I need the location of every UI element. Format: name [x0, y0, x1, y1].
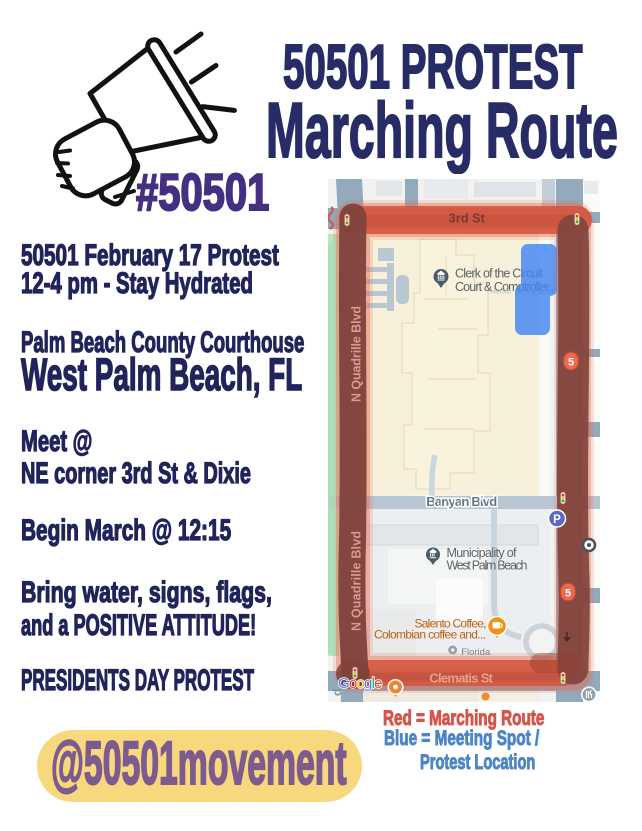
- svg-text:5: 5: [565, 588, 571, 600]
- svg-text:Colombian coffee and...: Colombian coffee and...: [374, 628, 486, 642]
- svg-text:Google: Google: [338, 675, 382, 692]
- svg-text:N Quadrille Blvd: N Quadrille Blvd: [350, 306, 364, 402]
- svg-text:Florida: Florida: [461, 647, 491, 658]
- svg-text:5: 5: [568, 357, 574, 369]
- svg-text:N Quadrille Blvd: N Quadrille Blvd: [350, 531, 364, 631]
- svg-text:Clematis St: Clematis St: [429, 670, 493, 685]
- svg-text:3rd St: 3rd St: [449, 211, 486, 225]
- svg-text:Historic: Historic: [491, 290, 511, 296]
- svg-text:Banyan Blvd: Banyan Blvd: [426, 494, 497, 509]
- svg-text:West Palm Beach: West Palm Beach: [447, 559, 528, 573]
- svg-text:P: P: [553, 514, 561, 526]
